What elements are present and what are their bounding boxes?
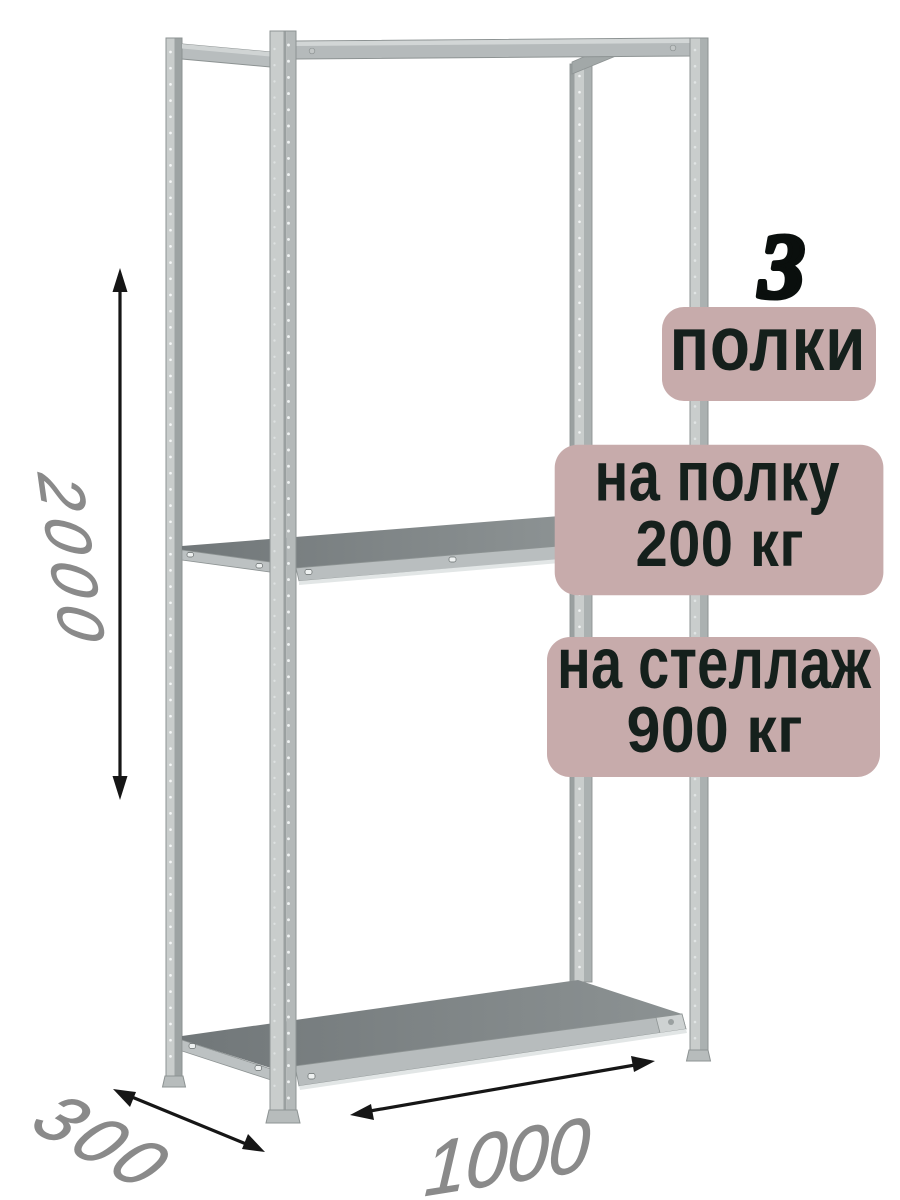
- svg-text:на стеллаж: на стеллаж: [557, 622, 872, 704]
- svg-text:полки: полки: [670, 301, 866, 387]
- svg-text:900 кг: 900 кг: [626, 694, 802, 766]
- svg-text:300: 300: [16, 1081, 189, 1200]
- svg-text:2000: 2000: [24, 470, 119, 653]
- svg-text:на полку: на полку: [594, 437, 840, 516]
- svg-text:200 кг: 200 кг: [635, 508, 803, 581]
- svg-text:1000: 1000: [423, 1101, 592, 1200]
